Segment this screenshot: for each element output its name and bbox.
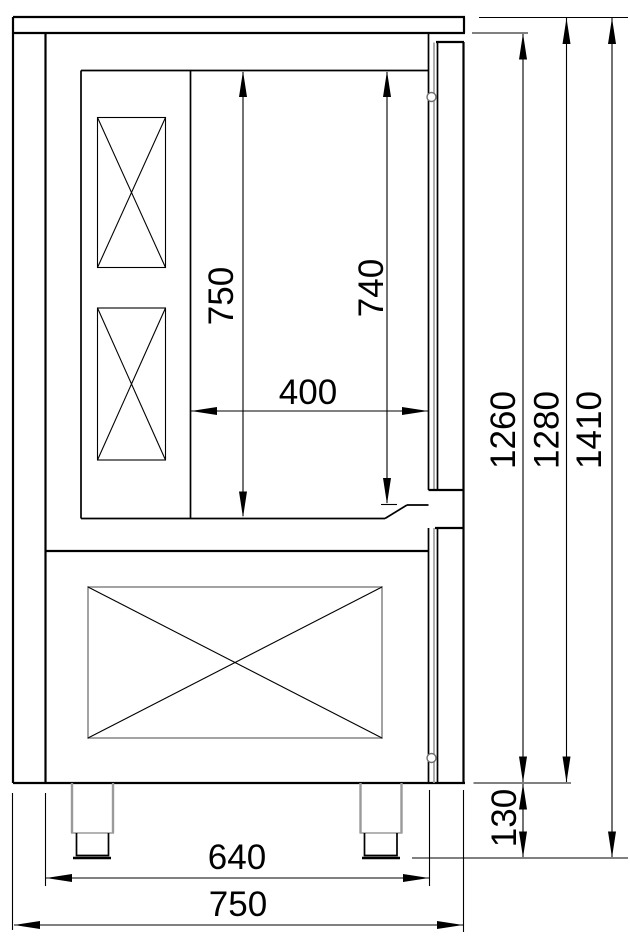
- dim-arrow-up: [519, 34, 527, 60]
- dim-arrow-left: [46, 874, 72, 882]
- dim-arrow-up: [563, 18, 571, 44]
- interior-bottom-chamfer: [385, 505, 407, 519]
- leg-left: [71, 783, 114, 858]
- dim-arrow-left: [14, 921, 40, 929]
- dim-label-body-height: 1280: [528, 391, 567, 469]
- dim-door-opening-height: 740: [352, 71, 397, 505]
- dim-label-foot-height: 130: [485, 789, 524, 847]
- dim-label-interior-width: 400: [279, 373, 337, 412]
- dim-label-inner-width: 640: [208, 838, 266, 877]
- leg-right: [360, 783, 403, 858]
- dim-arrow-up: [383, 71, 391, 97]
- dim-interior-height: 750: [202, 71, 247, 518]
- dim-inner-width: 640: [46, 838, 429, 882]
- condenser-box: [88, 587, 382, 738]
- dim-label-interior-height: 750: [202, 267, 241, 325]
- dim-overall-width: 750: [14, 885, 463, 929]
- technical-drawing-page: 750 740 400 1260 1280 1410: [0, 0, 630, 942]
- fan-box-lower: [98, 308, 166, 460]
- dim-overall-height: 1410: [570, 18, 616, 858]
- dim-foot-height: 130: [485, 784, 527, 858]
- dim-arrow-right: [403, 874, 429, 882]
- dim-label-door-opening-height: 740: [352, 259, 391, 317]
- dim-arrow-down: [608, 832, 616, 858]
- dim-arrow-down: [383, 478, 391, 504]
- dim-interior-width: 400: [191, 373, 428, 415]
- dim-label-inner-body-height: 1260: [484, 391, 523, 469]
- dim-arrow-down: [519, 757, 527, 783]
- dim-body-height: 1280: [528, 18, 571, 783]
- dim-inner-body-height: 1260: [484, 34, 527, 783]
- hinge-circle-top: [427, 93, 436, 102]
- technical-drawing-canvas: 750 740 400 1260 1280 1410: [0, 0, 630, 942]
- dim-arrow-up: [608, 18, 616, 44]
- fan-box-upper: [98, 118, 166, 268]
- dim-label-overall-width: 750: [209, 885, 267, 924]
- dim-arrow-right: [402, 407, 428, 415]
- extension-lines: [13, 18, 629, 933]
- doors: [427, 42, 464, 783]
- leg-right-foot: [365, 833, 398, 856]
- leg-left-foot: [77, 833, 109, 856]
- dim-arrow-right: [437, 921, 463, 929]
- dim-arrow-down: [563, 757, 571, 783]
- hinge-circle-bottom: [427, 754, 436, 763]
- dim-arrow-left: [191, 407, 217, 415]
- dim-label-overall-height: 1410: [570, 391, 609, 469]
- dim-arrow-down: [239, 492, 247, 518]
- dim-arrow-up: [239, 71, 247, 97]
